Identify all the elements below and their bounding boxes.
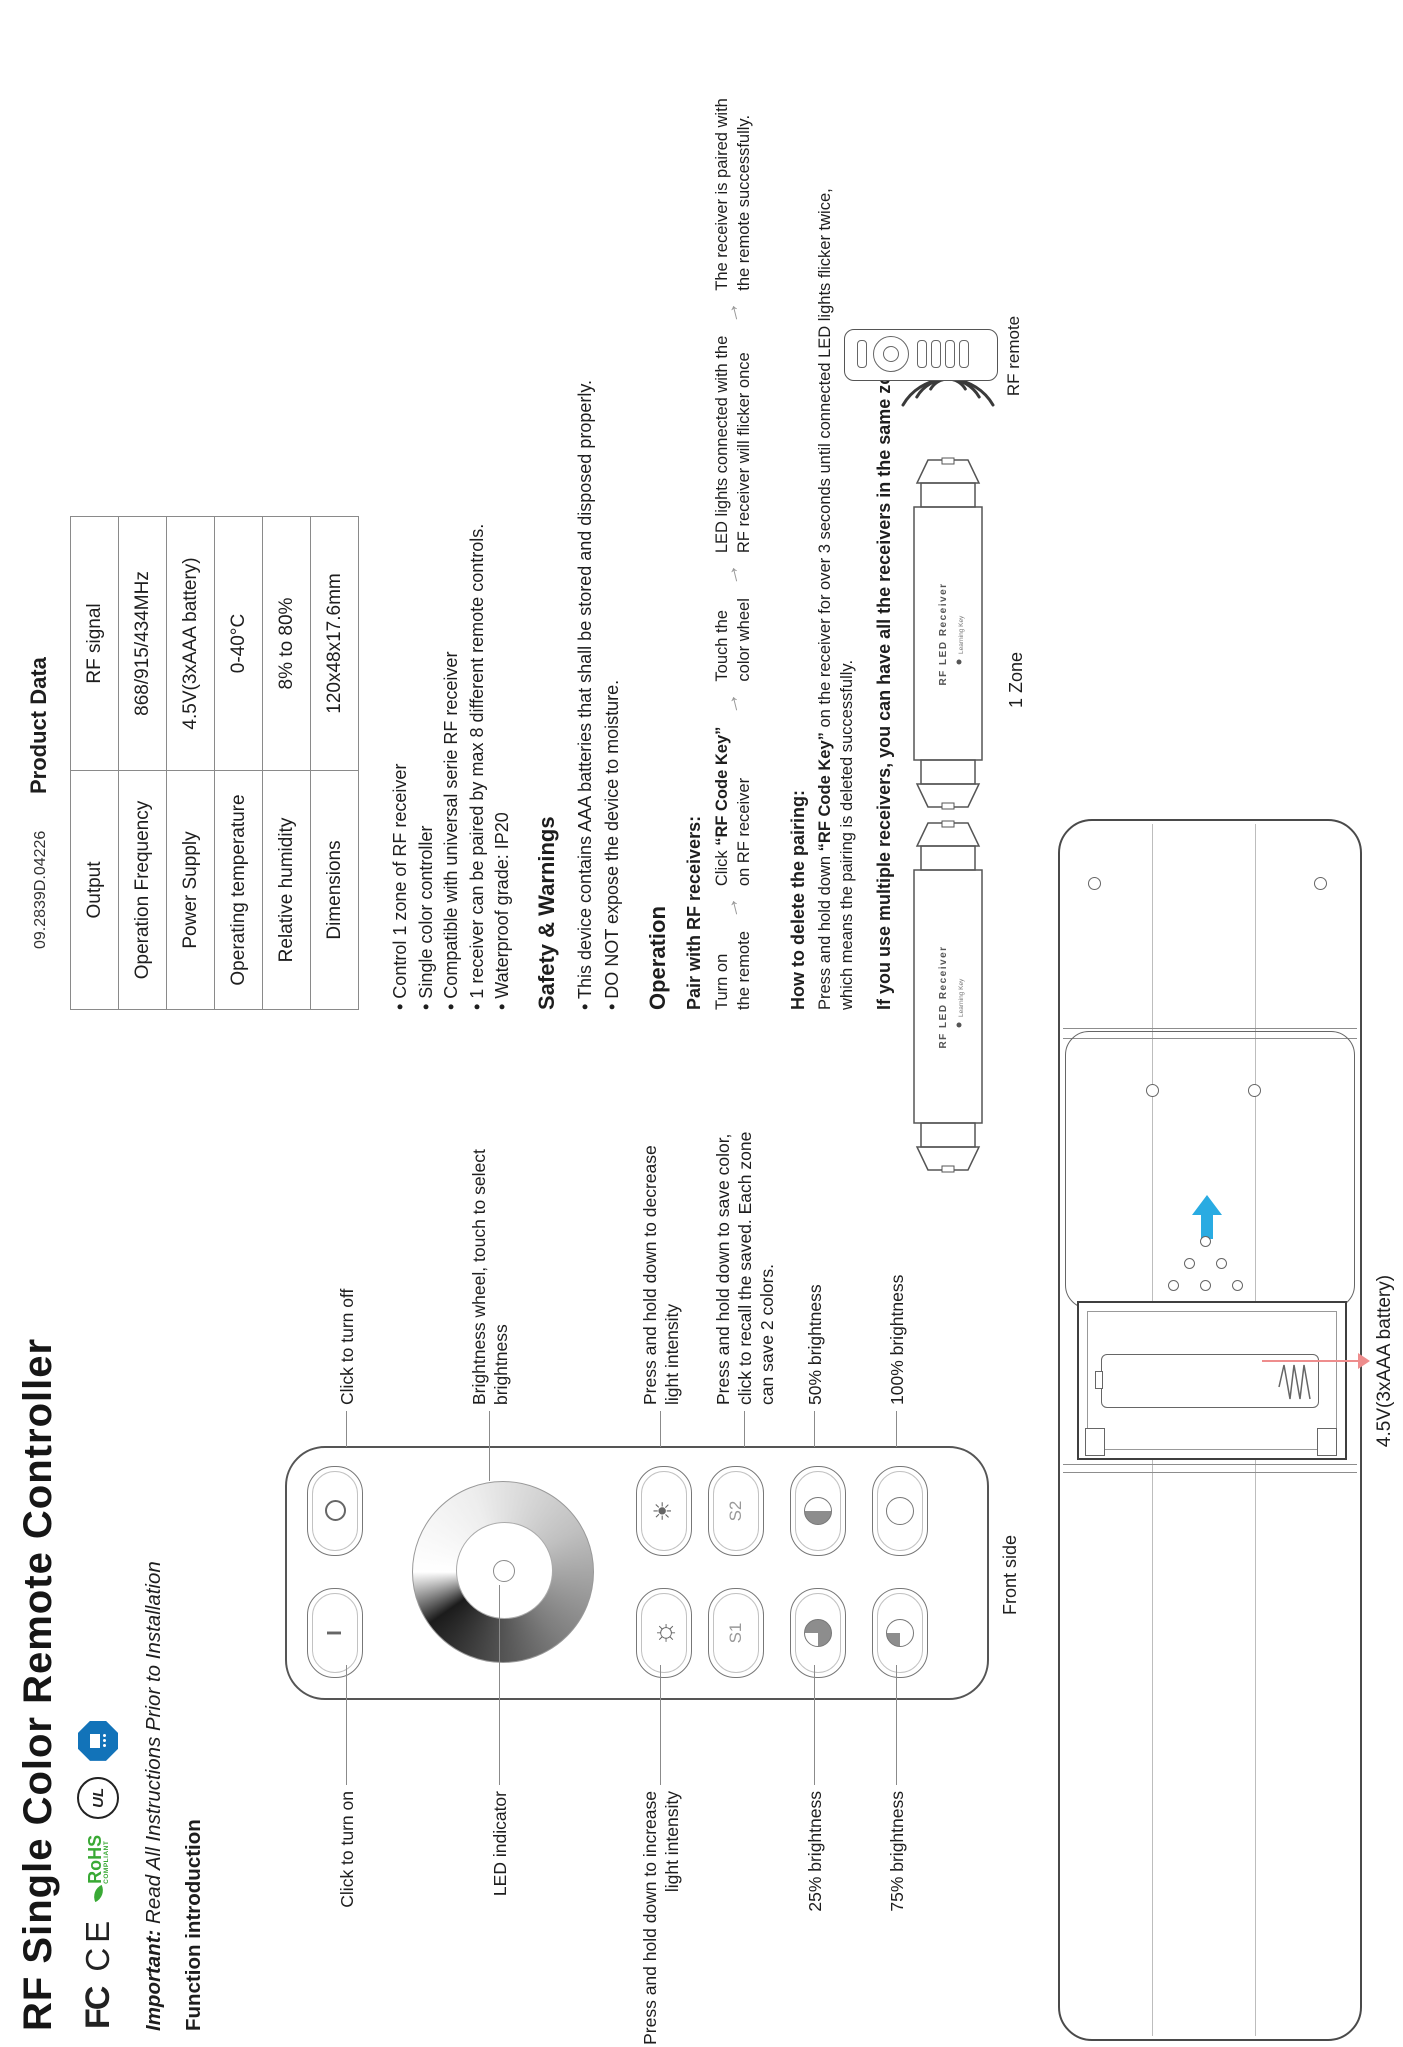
table-row: OutputRF signal: [71, 517, 119, 1010]
callout-50-brightness: 50% brightness: [804, 1284, 826, 1405]
manual-page: RF Single Color Remote Controller 09.283…: [0, 0, 1403, 2047]
power-on-icon: I: [324, 1630, 347, 1636]
battery-pointer-line: [1262, 1360, 1360, 1362]
list-item: Compatible with universal serie RF recei…: [439, 524, 465, 1010]
screw-hole-icon: [1146, 1084, 1159, 1097]
list-item: 1 receiver can be paired by max 8 differ…: [465, 524, 491, 1010]
list-item: Waterproof grade: IP20: [490, 524, 516, 1010]
brightness-wheel: [412, 1481, 594, 1663]
battery-clip: [1085, 1428, 1105, 1456]
s2-label: S2: [726, 1501, 746, 1522]
battery-spring-icon: [1274, 1357, 1314, 1407]
slide-direction-arrow: [1192, 1193, 1222, 1239]
product-data-table: OutputRF signal Operation Frequency868/9…: [70, 516, 359, 1010]
delete-pairing-heading: How to delete the pairing:: [788, 790, 809, 1010]
power-on-button: I: [307, 1588, 363, 1678]
divider-line: [1063, 1028, 1357, 1029]
svg-text:RF LED Receiver: RF LED Receiver: [938, 582, 949, 685]
power-off-icon: [325, 1501, 346, 1522]
callout-100-brightness: 100% brightness: [886, 1275, 908, 1405]
divider-line: [1063, 1472, 1357, 1473]
delete-pairing-body: Press and hold down “RF Code Key” on the…: [814, 188, 858, 1010]
divider-line: [1063, 1464, 1357, 1465]
rf-receiver-drawing: RF LED Receiver Learning Key: [912, 820, 984, 1173]
leaf-icon: [89, 1885, 106, 1902]
callout-save-recall: Press and hold down to save color, click…: [712, 1132, 778, 1405]
sun-outline-icon: ☼: [649, 1619, 679, 1647]
mini-button-slot: [917, 340, 927, 368]
rf-receiver-drawing: RF LED Receiver Learning Key: [912, 457, 984, 810]
callout-turn-off: Click to turn off: [336, 1289, 358, 1405]
important-text: Read All Instructions Prior to Installat…: [142, 1561, 165, 1929]
pairing-steps: Turn onthe remote → Click “RF Code Key” …: [712, 98, 755, 1010]
svg-text:Learning Key: Learning Key: [958, 615, 965, 654]
pairing-step: The receiver is paired withthe remote su…: [712, 98, 755, 291]
mini-button-slot: [945, 340, 955, 368]
screw-hole-icon: [1088, 877, 1101, 890]
arrow-right-icon: →: [718, 895, 746, 923]
ul-logo-icon: UL: [77, 1777, 119, 1819]
leader-line: [896, 1411, 897, 1447]
svg-text:Learning Key: Learning Key: [958, 978, 965, 1017]
zone-caption: 1 Zone: [1006, 600, 1027, 760]
rohs-logo: RoHS COMPLIANT: [86, 1835, 111, 1900]
battery-terminal: [1095, 1371, 1103, 1389]
leader-line: [744, 1411, 745, 1447]
tuv-badge-icon: [78, 1721, 118, 1761]
mini-wheel-icon: [873, 336, 909, 372]
safety-heading: Safety & Warnings: [534, 816, 560, 1010]
table-row: Dimensions120x48x17.6mm: [311, 517, 359, 1010]
table-row: Operation Frequency868/915/434MHz: [119, 517, 167, 1010]
product-data-heading: Product Data: [26, 657, 52, 794]
remote-front-drawing: I ☼ ☀ S1 S2: [285, 1446, 989, 1700]
list-item: Control 1 zone of RF receiver: [388, 524, 414, 1010]
document-scan: RF Single Color Remote Controller 09.283…: [0, 0, 1403, 2047]
front-side-caption: Front side: [1000, 1450, 1021, 1700]
feature-list: Control 1 zone of RF receiver Single col…: [388, 524, 516, 1010]
brightness-100-button: [872, 1466, 928, 1556]
callout-decrease: Press and hold down to decrease light in…: [639, 1145, 683, 1405]
rf-remote-caption: RF remote: [1004, 281, 1024, 431]
grip-hole-icon: [1168, 1280, 1179, 1291]
svg-text:RF LED Receiver: RF LED Receiver: [938, 945, 949, 1048]
leader-line: [814, 1411, 815, 1447]
operation-heading: Operation: [645, 906, 671, 1010]
pairing-step: LED lights connected with theRF receiver…: [712, 336, 755, 553]
leader-line: [489, 1411, 490, 1481]
doc-number: 09.2839D.04226: [32, 831, 50, 949]
s1-label: S1: [726, 1623, 746, 1644]
important-prefix: Important:: [142, 1930, 165, 2031]
pie-50-icon: [804, 1497, 832, 1525]
battery-pointer-arrowhead: [1358, 1353, 1370, 1369]
battery-note: 4.5V(3xAAA battery): [1374, 1175, 1396, 1547]
grip-hole-icon: [1200, 1236, 1211, 1247]
callout-25-brightness: 25% brightness: [804, 1791, 826, 2031]
leader-line: [660, 1665, 661, 1785]
pairing-step: Click “RF Code Key” on RF receiver: [712, 727, 755, 887]
screw-hole-icon: [1248, 1084, 1261, 1097]
rf-remote-drawing: [844, 329, 998, 381]
pie-25-icon: [804, 1619, 832, 1647]
mini-button-slot: [857, 340, 867, 368]
leader-line: [346, 1411, 347, 1447]
callout-75-brightness: 75% brightness: [886, 1791, 908, 2031]
decrease-intensity-button: ☀: [636, 1466, 692, 1556]
important-notice: Important: Read All Instructions Prior t…: [142, 1561, 166, 2031]
pie-75-icon: [886, 1619, 914, 1647]
callout-brightness-wheel: Brightness wheel, touch to select bright…: [468, 1149, 512, 1405]
table-row: Power Supply4.5V(3xAAA battery): [167, 517, 215, 1010]
pair-heading: Pair with RF receivers:: [684, 816, 705, 1010]
table-row: Relative humidity8% to 80%: [263, 517, 311, 1010]
rohs-sublabel: COMPLIANT: [104, 1835, 111, 1884]
grip-hole-icon: [1200, 1280, 1211, 1291]
pairing-step: Turn onthe remote: [712, 931, 755, 1010]
function-introduction-heading: Function introduction: [182, 1819, 206, 2031]
aaa-battery: [1101, 1354, 1319, 1408]
battery-clip: [1317, 1428, 1337, 1456]
sun-filled-icon: ☀: [652, 1500, 676, 1522]
list-item: This device contains AAA batteries that …: [572, 380, 599, 1010]
page-title: RF Single Color Remote Controller: [16, 1338, 61, 2031]
power-off-button: [307, 1466, 363, 1556]
list-item: DO NOT expose the device to moisture.: [599, 380, 626, 1010]
brightness-50-button: [790, 1466, 846, 1556]
save-recall-s2-button: S2: [708, 1466, 764, 1556]
arrow-right-icon: →: [718, 690, 746, 718]
led-indicator: [493, 1560, 515, 1582]
remote-back-drawing: [1058, 819, 1362, 2041]
pairing-step: Touch thecolor wheel: [712, 598, 755, 681]
mini-button-slot: [959, 340, 969, 368]
rohs-label: RoHS: [86, 1835, 104, 1884]
arrow-right-icon: →: [718, 562, 746, 590]
multi-receiver-note: If you use multiple receivers, you can h…: [874, 353, 895, 1010]
ce-logo-icon: CE: [79, 1916, 117, 1972]
battery-cover: [1065, 1031, 1355, 1309]
table-row: Operating temperature0-40°C: [215, 517, 263, 1010]
screw-hole-icon: [1314, 877, 1327, 890]
callout-led-indicator: LED indicator: [489, 1791, 511, 2031]
pie-100-icon: [886, 1497, 914, 1525]
callout-turn-on: Click to turn on: [336, 1791, 358, 2031]
wifi-signal-icon: [898, 375, 998, 455]
certification-logos: FC CE RoHS COMPLIANT UL: [72, 1721, 124, 2029]
leader-line: [814, 1665, 815, 1785]
leader-line: [660, 1411, 661, 1447]
save-recall-s1-button: S1: [708, 1588, 764, 1678]
safety-list: This device contains AAA batteries that …: [572, 380, 626, 1010]
brightness-75-button: [872, 1588, 928, 1678]
battery-bay: [1077, 1301, 1347, 1460]
callout-increase: Press and hold down to increase light in…: [639, 1791, 683, 2047]
arrow-right-icon: →: [718, 299, 746, 327]
grip-hole-icon: [1184, 1258, 1195, 1269]
brightness-25-button: [790, 1588, 846, 1678]
grip-hole-icon: [1232, 1280, 1243, 1291]
grip-hole-icon: [1216, 1258, 1227, 1269]
leader-line: [499, 1585, 500, 1785]
fcc-logo-icon: FC: [79, 1988, 118, 2029]
mini-button-slot: [931, 340, 941, 368]
leader-line: [896, 1665, 897, 1785]
leader-line: [346, 1665, 347, 1785]
list-item: Single color controller: [414, 524, 440, 1010]
increase-intensity-button: ☼: [636, 1588, 692, 1678]
